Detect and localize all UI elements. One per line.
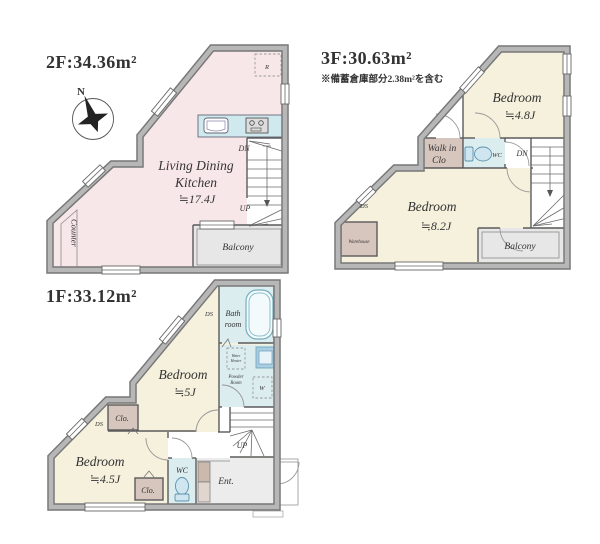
label-bedroom-45-size: ≒4.5J	[90, 472, 121, 486]
porch	[280, 459, 298, 505]
label-ds-bath: DS	[204, 311, 214, 318]
vanity-icon	[256, 347, 275, 368]
label-bedroom-45: Bedroom	[76, 454, 125, 469]
floor-3f: 3F:30.63m² ※備蓄倉庫部分2.38m²を含む Bedroom ≒4.8…	[321, 48, 571, 270]
label-entrance: Ent.	[217, 477, 234, 487]
label-dn-3f: DN	[515, 149, 528, 158]
label-ldk-1: Living Dining	[157, 158, 234, 173]
title-1f: 1F:33.12m²	[46, 286, 137, 306]
stairwell-2f	[247, 138, 285, 227]
window	[563, 54, 571, 74]
label-ldk-size: ≒17.4J	[179, 192, 216, 206]
label-bedroom-82-size: ≒8.2J	[421, 219, 452, 233]
title-3f: 3F:30.63m²	[321, 48, 412, 68]
shoe-cabinet	[198, 462, 210, 502]
label-ds-closet: DS	[94, 421, 104, 428]
entry-step	[253, 511, 283, 517]
toilet-icon	[175, 478, 189, 502]
label-wc-1f: WC	[176, 466, 189, 475]
window	[273, 319, 281, 337]
label-up-2f: UP	[240, 204, 251, 213]
room-warehouse	[341, 222, 377, 256]
label-balcony-3f: Balcony	[504, 242, 536, 252]
label-bedroom-5: Bedroom	[159, 367, 208, 382]
label-powder-1: Powder	[228, 375, 244, 380]
compass-icon: N	[69, 86, 113, 140]
label-dn-2f: DN	[237, 144, 250, 153]
label-wc-3f: WC	[492, 152, 502, 159]
label-fridge: R	[264, 64, 269, 71]
hall-1f	[168, 432, 230, 458]
window	[85, 503, 145, 511]
label-powder-2: Room	[229, 381, 242, 386]
toilet-icon	[465, 147, 492, 161]
label-closet-a: Clo.	[115, 414, 129, 423]
label-bedroom-82: Bedroom	[408, 199, 457, 214]
label-bath-2: room	[225, 320, 242, 329]
window	[563, 96, 571, 116]
label-bedroom-48-size: ≒4.8J	[505, 108, 536, 122]
floor-1f: 1F:33.12m² Bedroom ≒5J Bedroom ≒4.5J Bat…	[46, 283, 299, 517]
window	[102, 266, 140, 274]
sliding-door	[200, 221, 234, 229]
label-walkin-2: Clo	[432, 156, 446, 166]
window	[395, 262, 443, 270]
floorplan-page: N 2F:34.36m² Living Dining Kitchen ≒17.4…	[0, 0, 600, 544]
label-ldk-2: Kitchen	[174, 175, 217, 190]
floorplan-canvas: N 2F:34.36m² Living Dining Kitchen ≒17.4…	[0, 0, 600, 544]
label-bedroom-48: Bedroom	[493, 90, 542, 105]
label-bath-1: Bath	[225, 309, 240, 318]
label-warehouse: Warehouse	[349, 240, 371, 245]
stairwell-3f	[531, 138, 567, 227]
label-washer: W	[259, 385, 265, 392]
bathtub-icon	[246, 290, 273, 339]
note-3f: ※備蓄倉庫部分2.38m²を含む	[321, 73, 444, 85]
label-ds-3f: DS	[359, 203, 369, 210]
label-counter: Counter	[70, 219, 80, 248]
compass-north-label: N	[77, 86, 85, 98]
label-closet-b: Clo.	[141, 486, 155, 495]
title-2f: 2F:34.36m²	[46, 52, 137, 72]
label-balcony-2f: Balcony	[222, 243, 254, 253]
label-heater-2: Heater	[230, 359, 242, 363]
label-bedroom-5-size: ≒5J	[174, 385, 196, 399]
stove-icon	[246, 118, 268, 133]
label-walkin-1: Walk in	[428, 144, 457, 154]
label-up-1f: UP	[237, 441, 248, 450]
label-heater-1: Water	[232, 354, 241, 358]
window	[281, 84, 289, 104]
floor-2f: N 2F:34.36m² Living Dining Kitchen ≒17.4…	[46, 48, 289, 274]
